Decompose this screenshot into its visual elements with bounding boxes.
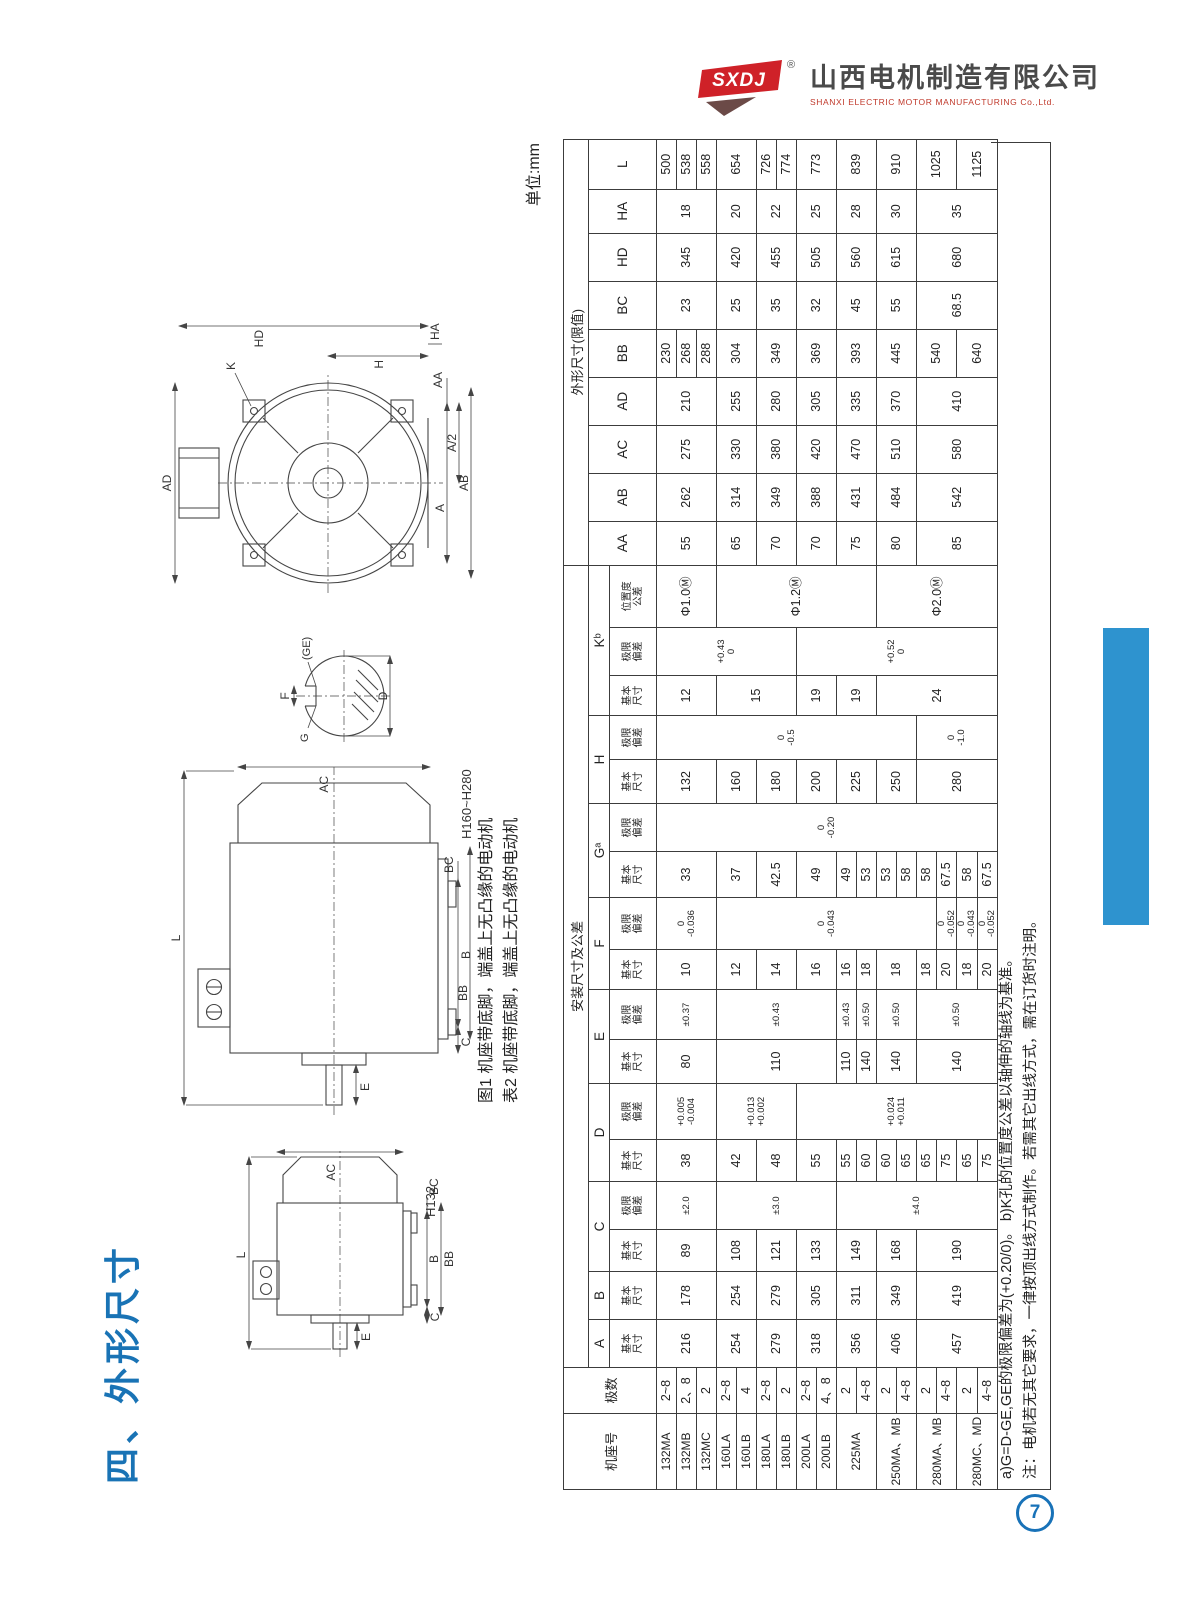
table-cell: 140 [917, 1040, 998, 1084]
table-cell: 345 [657, 233, 717, 281]
table-cell: 349 [757, 329, 797, 377]
table-cell: 254 [717, 1272, 757, 1320]
table-cell: 380 [757, 425, 797, 473]
table-cell: 484 [877, 473, 917, 521]
table-cell: 542 [917, 473, 998, 521]
subheader-basic: 基本 尺寸 [610, 1040, 657, 1084]
table-cell: 121 [757, 1230, 797, 1272]
dim-label-bb: BB [442, 1251, 456, 1267]
rect-shape [448, 881, 456, 907]
table-cell: 2 [697, 1368, 717, 1414]
sxdj-logo-svg: SXDJ ® [694, 56, 798, 122]
table-cell: ±4.0 [837, 1182, 998, 1230]
table-cell: +0.024 +0.011 [797, 1084, 998, 1140]
table-cell: 178 [657, 1272, 717, 1320]
table-cell: 75 [937, 1140, 957, 1182]
table-cell: 393 [837, 329, 877, 377]
drawing-side-view-h132: L AC E C B BB BC H132 [235, 1148, 463, 1363]
table-cell: ±0.50 [877, 990, 917, 1040]
dim-label-g: G [299, 733, 311, 742]
table-cell: 55 [657, 521, 717, 565]
table-cell: 67.5 [937, 852, 957, 898]
table-cell: 53 [877, 852, 897, 898]
table-cell: 160 [717, 760, 757, 804]
subheader-basic: 基本 尺寸 [610, 1272, 657, 1320]
table-cell: 4~8 [897, 1368, 917, 1414]
table-cell: 32 [797, 281, 837, 329]
header-dim-a: A [589, 1320, 610, 1368]
table-cell: 85 [917, 521, 998, 565]
line-shape [352, 704, 368, 720]
table-cell: ±0.37 [657, 990, 717, 1040]
table-cell: 510 [877, 425, 917, 473]
table-cell: Φ1.2Ⓜ [717, 565, 877, 627]
drawing-shaft-section: F (GE) G D [278, 625, 400, 750]
circle-shape [251, 408, 258, 415]
table-cell: 500 [657, 139, 677, 189]
table-cell: 58 [917, 852, 937, 898]
table-cell: 356 [837, 1320, 877, 1368]
table-cell: 132 [657, 760, 717, 804]
table-cell: 615 [877, 233, 917, 281]
table-cell: 839 [837, 139, 877, 189]
table-cell: 58 [897, 852, 917, 898]
model-label-h160-h280: H160~H280 [459, 769, 474, 839]
dim-label-b: B [427, 1255, 441, 1263]
table-cell: 0 -0.036 [657, 898, 717, 950]
caption-tab2: 表2 机座带底脚，端盖上无凸缘的电动机 [500, 818, 525, 1103]
table-cell: 180LA [757, 1414, 777, 1490]
circle-shape [261, 1284, 272, 1295]
table-cell: 168 [877, 1230, 917, 1272]
table-cell: 0 -0.5 [657, 716, 917, 760]
table-cell: ±0.43 [837, 990, 857, 1040]
table-cell: 58 [957, 852, 977, 898]
table-cell: 773 [797, 139, 837, 189]
table-cell: 0 -0.043 [717, 898, 937, 950]
table-cell: 16 [837, 950, 857, 990]
table-cell: 280 [757, 377, 797, 425]
table-cell: 2~8 [657, 1368, 677, 1414]
table-cell: 49 [837, 852, 857, 898]
subheader-basic: 基本 尺寸 [610, 1320, 657, 1368]
table-cell: 24 [877, 676, 998, 716]
dim-label-c: C [459, 1037, 473, 1046]
table-cell: 388 [797, 473, 837, 521]
table-cell: 20 [717, 189, 757, 233]
line-shape [356, 680, 378, 702]
table-cell: 80 [657, 1040, 717, 1084]
table-cell: 560 [837, 233, 877, 281]
dim-label-b: B [459, 951, 473, 959]
table-cell: 774 [777, 139, 797, 189]
company-name-en: SHANXI ELECTRIC MOTOR MANUFACTURING Co.,… [810, 97, 1100, 107]
unit-label: 单位:mm [520, 143, 544, 318]
table-cell: 68.5 [917, 281, 998, 329]
table-cell: 311 [837, 1272, 877, 1320]
header-frame: 机座号 [564, 1414, 657, 1490]
table-cell: 200LA [797, 1414, 817, 1490]
table-cell: 2~8 [757, 1368, 777, 1414]
dim-label-f: F [278, 692, 292, 699]
table-cell: 30 [877, 189, 917, 233]
table-cell: 0 -0.043 [957, 898, 977, 950]
table-cell: 70 [757, 521, 797, 565]
table-cell: 250 [877, 760, 917, 804]
header-poles: 极数 [564, 1368, 657, 1414]
polygon-shape [706, 97, 756, 116]
table-cell: 406 [877, 1320, 917, 1368]
table-cell: 180LB [777, 1414, 797, 1490]
header-outline-group: 外形尺寸(限值) [564, 139, 589, 565]
subheader-dev: 极限 偏差 [610, 1182, 657, 1230]
table-cell: 60 [857, 1140, 877, 1182]
subheader-basic: 基本 尺寸 [610, 852, 657, 898]
header-dim-b: B [589, 1272, 610, 1320]
table-cell: 75 [837, 521, 877, 565]
table-cell: 20 [937, 950, 957, 990]
header-dim-g: Gᵃ [589, 804, 610, 898]
drawing-front-view: AD K HD H HA A A/ [163, 318, 475, 618]
table-cell: 2 [777, 1368, 797, 1414]
rect-shape [411, 1213, 417, 1233]
table-cell: 18 [657, 189, 717, 233]
table-cell: 505 [797, 233, 837, 281]
header-dim-bc: BC [589, 281, 657, 329]
table-cell: ±0.50 [857, 990, 877, 1040]
subheader-basic: 基本 尺寸 [610, 1230, 657, 1272]
table-cell: 2、8 [677, 1368, 697, 1414]
table-cell: Φ1.0Ⓜ [657, 565, 717, 627]
table-body: 132MA2~821617889±2.038+0.005 -0.00480±0.… [657, 139, 998, 1489]
table-cell: 275 [657, 425, 717, 473]
line-shape [308, 706, 316, 728]
table-cell: 280MA、MB [917, 1414, 957, 1490]
table-cell: 180 [757, 760, 797, 804]
table-cell: 42.5 [757, 852, 797, 898]
table-cell: 23 [657, 281, 717, 329]
circle-shape [399, 552, 406, 559]
line-shape [358, 513, 393, 548]
table-cell: 280 [917, 760, 998, 804]
dim-label-c: C [428, 1312, 442, 1321]
rect-shape [411, 1285, 417, 1305]
subheader-dev: 极限 偏差 [610, 990, 657, 1040]
table-cell: 18 [877, 950, 917, 990]
note-line-1: a)G=D-GE,GE的极限偏差为(+0.20/0)。 b)K孔的位置度公差以轴… [996, 153, 1020, 1479]
table-cell: 55 [797, 1140, 837, 1182]
table-cell: 65 [957, 1140, 977, 1182]
header-dim-ad: AD [589, 377, 657, 425]
header-dim-d: D [589, 1084, 610, 1182]
table-cell: 470 [837, 425, 877, 473]
subheader-dev: 极限 偏差 [610, 1084, 657, 1140]
table-cell: 35 [757, 281, 797, 329]
table-cell: 33 [657, 852, 717, 898]
header-dim-aa: AA [589, 521, 657, 565]
table-cell: 38 [657, 1140, 717, 1182]
table-cell: +0.013 +0.002 [717, 1084, 797, 1140]
table-cell: 200 [797, 760, 837, 804]
dim-label-l: L [169, 934, 183, 941]
company-name-cn: 山西电机制造有限公司 [810, 64, 1100, 94]
table-cell: ±0.43 [717, 990, 837, 1040]
dim-label-ad: AD [160, 474, 174, 491]
subheader-dev: 极限 偏差 [610, 804, 657, 852]
table-cell: 190 [917, 1230, 998, 1272]
table-cell: 216 [657, 1320, 717, 1368]
subheader-basic: 基本 尺寸 [610, 1140, 657, 1182]
table-cell: 140 [857, 1040, 877, 1084]
dim-label-ab: AB [457, 475, 471, 491]
drawing-side-view-h160-h280: L AC E C B BB BC H160~H280 [168, 758, 475, 1123]
subheader-pos: 位置度 公差 [610, 565, 657, 627]
table-cell: 335 [837, 377, 877, 425]
rect-shape [198, 969, 230, 1027]
table-cell: 80 [877, 521, 917, 565]
rect-shape [243, 400, 265, 422]
table-cell: 369 [797, 329, 837, 377]
section-tab [1103, 628, 1149, 925]
line-shape [358, 418, 393, 453]
table-cell: 279 [757, 1320, 797, 1368]
header-dim-h: H [589, 716, 610, 804]
table-cell: 726 [757, 139, 777, 189]
rect-shape [391, 400, 413, 422]
table-cell: 2~8 [717, 1368, 737, 1414]
table-cell: 540 [917, 329, 957, 377]
table-cell: 110 [717, 1040, 837, 1084]
table-cell: 65 [717, 521, 757, 565]
table-cell: 19 [837, 676, 877, 716]
table-cell: 262 [657, 473, 717, 521]
sxdj-logo-icon: SXDJ ® [694, 56, 798, 122]
header-dim-hd: HD [589, 233, 657, 281]
note-line-2: 注：电机若无其它要求，一律按顶出线方式制作。若需其它出线方式，需在订货时注明。 [1020, 153, 1044, 1479]
table-cell: 318 [797, 1320, 837, 1368]
figure-captions: 图1 机座带底脚，端盖上无凸缘的电动机 表2 机座带底脚，端盖上无凸缘的电动机 [475, 818, 525, 1103]
table-cell: 22 [757, 189, 797, 233]
header-install-group: 安装尺寸及公差 [564, 565, 589, 1367]
table-cell: 654 [717, 139, 757, 189]
table-cell: 370 [877, 377, 917, 425]
table-cell: 55 [837, 1140, 857, 1182]
table-cell: 305 [797, 377, 837, 425]
dim-label-k: K [224, 362, 238, 370]
table-cell: 42 [717, 1140, 757, 1182]
table-cell: 349 [877, 1272, 917, 1320]
table-cell: 4 [737, 1368, 757, 1414]
table-cell: 49 [797, 852, 837, 898]
table-cell: 55 [877, 281, 917, 329]
table-cell: 420 [717, 233, 757, 281]
table-cell: 225 [837, 760, 877, 804]
dimension-table: 机座号 极数 安装尺寸及公差 外形尺寸(限值) A B C D E F Gᵃ H… [563, 139, 998, 1490]
table-cell: 140 [877, 1040, 917, 1084]
rect-shape [438, 859, 448, 1039]
section-title: 四、外形尺寸 [94, 1244, 146, 1484]
circle-shape [251, 552, 258, 559]
table-cell: ±2.0 [657, 1182, 717, 1230]
caption-fig1: 图1 机座带底脚，端盖上无凸缘的电动机 [475, 818, 500, 1103]
subheader-dev: 极限 偏差 [610, 716, 657, 760]
registered-mark: ® [787, 59, 795, 71]
model-label-h132: H132 [423, 1186, 438, 1217]
table-cell: 558 [697, 139, 717, 189]
table-cell: 420 [797, 425, 837, 473]
table-cell: 210 [657, 377, 717, 425]
table-cell: 45 [837, 281, 877, 329]
table-cell: 4~8 [857, 1368, 877, 1414]
table-cell: +0.52 0 [797, 628, 998, 676]
table-header: 机座号 极数 安装尺寸及公差 外形尺寸(限值) A B C D E F Gᵃ H… [564, 139, 657, 1489]
table-cell: 455 [757, 233, 797, 281]
rect-shape [448, 1009, 456, 1035]
table-cell: 89 [657, 1230, 717, 1272]
table-cell: 419 [917, 1272, 998, 1320]
subheader-basic: 基本 尺寸 [610, 676, 657, 716]
rect-shape [403, 1211, 411, 1307]
table-cell: 12 [717, 950, 757, 990]
table-cell: +0.43 0 [657, 628, 797, 676]
table-cell: 288 [697, 329, 717, 377]
dim-label-bc: BC [442, 856, 456, 873]
table-cell: 35 [917, 189, 998, 233]
document-page: SXDJ ® 山西电机制造有限公司 SHANXI ELECTRIC MOTOR … [0, 0, 1200, 1617]
header-dim-ab: AB [589, 473, 657, 521]
subheader-dev: 极限 偏差 [610, 628, 657, 676]
table-cell: 410 [917, 377, 998, 425]
table-cell: 110 [837, 1040, 857, 1084]
table-cell: 65 [917, 1140, 937, 1182]
table-cell: 37 [717, 852, 757, 898]
header-dim-f: F [589, 898, 610, 990]
dim-label-ac: AC [324, 1164, 338, 1181]
table-cell: Φ2.0Ⓜ [877, 565, 998, 627]
table-cell: 25 [717, 281, 757, 329]
rotated-content: 四、外形尺寸 L AC [70, 128, 1060, 1548]
table-cell: 250MA、MB [877, 1414, 917, 1490]
table-notes: a)G=D-GE,GE的极限偏差为(+0.20/0)。 b)K孔的位置度公差以轴… [991, 142, 1051, 1490]
table-cell: 200LB [817, 1414, 837, 1490]
dim-label-hd: HD [252, 330, 266, 348]
table-row: 132MA2~821617889±2.038+0.005 -0.00480±0.… [657, 139, 677, 1489]
table-cell: 15 [717, 676, 797, 716]
table-cell: 16 [797, 950, 837, 990]
table-cell: ±0.50 [917, 990, 998, 1040]
table-cell: 18 [857, 950, 877, 990]
table-cell: 4~8 [937, 1368, 957, 1414]
table-cell: 160LB [737, 1414, 757, 1490]
rect-shape [243, 544, 265, 566]
table-cell: 12 [657, 676, 717, 716]
table-cell: 2 [957, 1368, 977, 1414]
dim-label-d: D [376, 691, 390, 700]
table-cell: 349 [757, 473, 797, 521]
subheader-basic: 基本 尺寸 [610, 950, 657, 990]
line-shape [308, 662, 316, 686]
header-dim-bb: BB [589, 329, 657, 377]
dim-label-h: H [372, 360, 386, 369]
header-dim-ha: HA [589, 189, 657, 233]
table-cell: 0 -0.052 [937, 898, 957, 950]
dim-label-e: E [358, 1083, 372, 1091]
table-cell: 132MC [697, 1414, 717, 1490]
table-cell: 580 [917, 425, 998, 473]
table-cell: 538 [677, 139, 697, 189]
circle-shape [261, 1267, 272, 1278]
table-cell: 279 [757, 1272, 797, 1320]
table-cell: 14 [757, 950, 797, 990]
table-cell: 70 [797, 521, 837, 565]
table-cell: 19 [797, 676, 837, 716]
line-shape [358, 670, 378, 690]
table-cell: 255 [717, 377, 757, 425]
table-cell: 254 [717, 1320, 757, 1368]
table-cell: 28 [837, 189, 877, 233]
header-dim-k: Kᵇ [589, 565, 610, 715]
table-cell: 2 [877, 1368, 897, 1414]
header-dim-l: L [589, 139, 657, 189]
dim-label-bb: BB [456, 985, 470, 1001]
table-cell: 18 [917, 950, 937, 990]
table-cell: 2 [837, 1368, 857, 1414]
circle-shape [399, 408, 406, 415]
table-cell: ±3.0 [717, 1182, 837, 1230]
subheader-dev: 极限 偏差 [610, 898, 657, 950]
table-cell: 431 [837, 473, 877, 521]
company-names: 山西电机制造有限公司 SHANXI ELECTRIC MOTOR MANUFAC… [810, 56, 1100, 107]
table-cell: 305 [797, 1272, 837, 1320]
dim-label-ha: HA [428, 323, 442, 340]
header-dim-e: E [589, 990, 610, 1084]
table-cell: 132MA [657, 1414, 677, 1490]
dim-label-ge: (GE) [301, 637, 313, 660]
table-cell: 133 [797, 1230, 837, 1272]
table-cell: 457 [917, 1320, 998, 1368]
table-cell: 160LA [717, 1414, 737, 1490]
table-cell: 48 [757, 1140, 797, 1182]
table-cell: 10 [657, 950, 717, 990]
table-cell: 2~8 [797, 1368, 817, 1414]
table-cell: 2 [917, 1368, 937, 1414]
header-dim-ac: AC [589, 425, 657, 473]
table-cell: 910 [877, 139, 917, 189]
dim-label-l: L [234, 1251, 248, 1258]
subheader-basic: 基本 尺寸 [610, 760, 657, 804]
company-brand: SXDJ ® 山西电机制造有限公司 SHANXI ELECTRIC MOTOR … [694, 56, 1100, 122]
table-cell: 304 [717, 329, 757, 377]
line-shape [263, 513, 298, 548]
dim-label-e: E [359, 1333, 373, 1341]
table-cell: 18 [957, 950, 977, 990]
rect-shape [391, 544, 413, 566]
table-cell: 65 [897, 1140, 917, 1182]
dim-label-aa: AA [431, 372, 445, 388]
table-cell: +0.005 -0.004 [657, 1084, 717, 1140]
table-cell: 0 -0.20 [657, 804, 998, 852]
table-cell: 314 [717, 473, 757, 521]
table-cell: 268 [677, 329, 697, 377]
header-dim-c: C [589, 1182, 610, 1272]
table-cell: 1025 [917, 139, 957, 189]
dim-label-a2: A/2 [445, 434, 459, 452]
table-cell: 108 [717, 1230, 757, 1272]
logo-mark-text: SXDJ [712, 70, 766, 91]
table-cell: 230 [657, 329, 677, 377]
dim-label-ac: AC [317, 776, 331, 793]
table-cell: 149 [837, 1230, 877, 1272]
